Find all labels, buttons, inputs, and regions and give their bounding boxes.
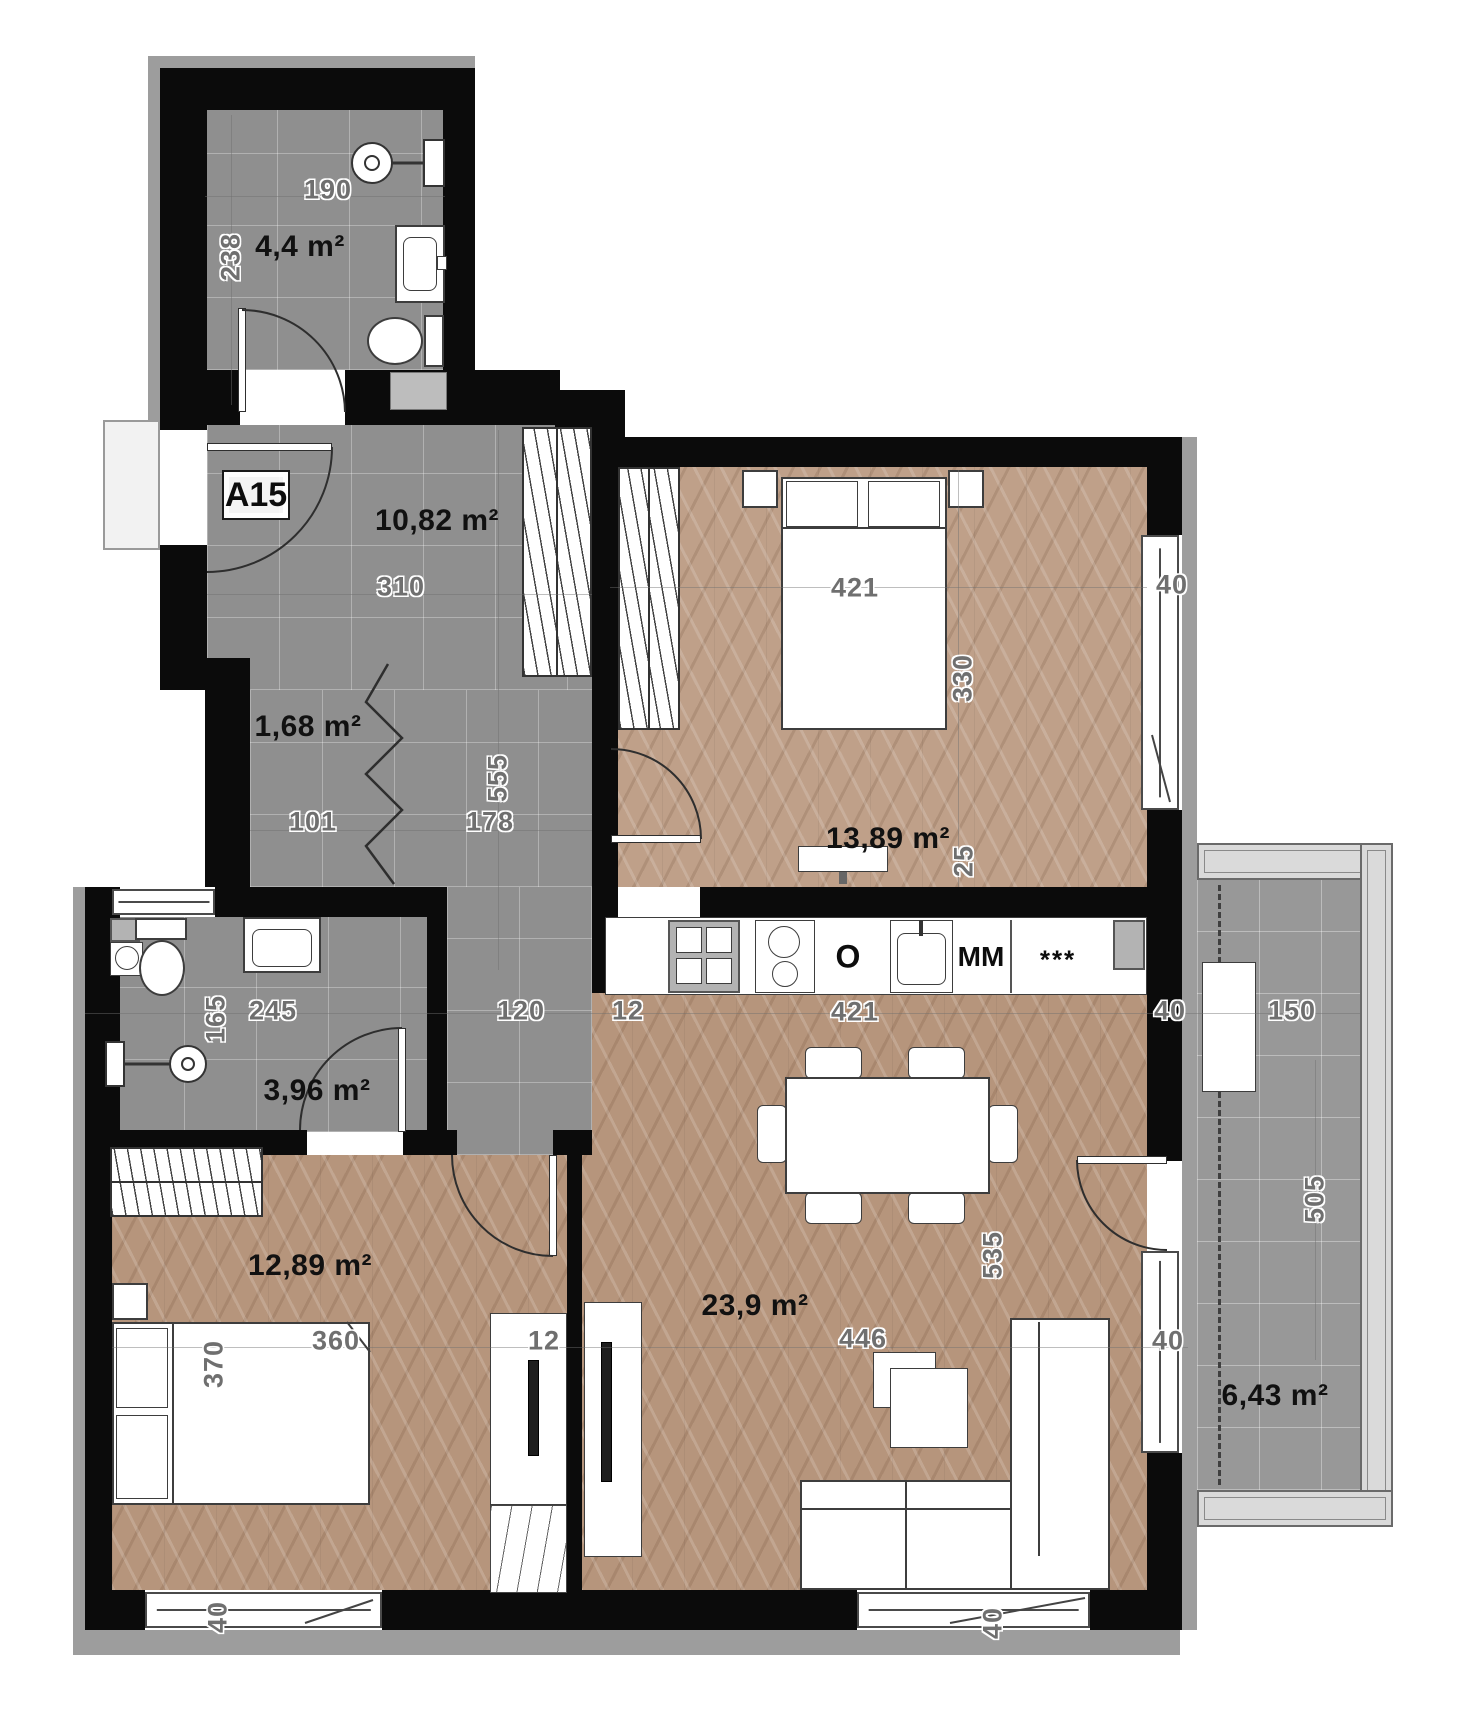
wall xyxy=(85,1155,112,1630)
toilet-tank xyxy=(135,918,187,940)
cabinet-pane xyxy=(706,927,732,953)
sofa-cushion-line xyxy=(905,1482,907,1588)
bedroom-top-wardrobe-divider xyxy=(648,467,650,730)
wall xyxy=(205,658,250,887)
area-label-bathroom-top: 4,4 m² xyxy=(255,230,345,264)
bed-blanket-line xyxy=(172,1322,174,1505)
kitchen-stars-label: *** xyxy=(1040,945,1076,976)
kitchen-corner-unit xyxy=(1113,920,1145,970)
wall xyxy=(610,437,1182,467)
washing-machine-drum-icon xyxy=(115,946,139,970)
dim-330: 330 xyxy=(948,654,979,702)
wall xyxy=(160,370,240,425)
toilet-bowl xyxy=(367,317,423,365)
dim-421-kitchen: 421 xyxy=(831,997,879,1028)
dresser xyxy=(490,1505,567,1593)
hall-wardrobe-divider xyxy=(556,427,558,677)
wall xyxy=(1147,810,1182,1161)
sofa-chaise xyxy=(1010,1318,1110,1590)
kitchen-mm-label: MM xyxy=(958,941,1005,973)
dim-360: 360 xyxy=(312,1326,360,1357)
area-label-bathroom-lower: 3,96 m² xyxy=(264,1074,371,1108)
entry-door-leaf xyxy=(207,443,332,451)
tv-screen xyxy=(528,1360,539,1456)
wall xyxy=(427,917,447,1132)
dim-40-bottom-center: 40 xyxy=(978,1607,1009,1639)
floor-plan: A15 O MM *** xyxy=(0,0,1470,1732)
wall xyxy=(215,887,447,917)
toilet-bowl xyxy=(139,940,185,996)
dim-421-bed: 421 xyxy=(831,573,879,604)
dining-chair xyxy=(908,1047,965,1079)
dim-40-bottom-left: 40 xyxy=(203,1601,234,1633)
nightstand xyxy=(742,470,778,508)
wall xyxy=(160,545,207,690)
area-label-bedroom-left: 12,89 m² xyxy=(248,1249,372,1283)
pillow xyxy=(116,1328,168,1408)
bed-blanket-line xyxy=(781,527,947,529)
dim-245: 245 xyxy=(249,996,297,1027)
cabinet-pane xyxy=(676,927,702,953)
nightstand xyxy=(112,1283,148,1320)
window-bathroom-lower xyxy=(112,889,215,915)
dim-12-partition: 12 xyxy=(528,1326,560,1357)
dining-chair xyxy=(908,1192,965,1224)
dim-40-right: 40 xyxy=(1152,1326,1184,1357)
dim-178: 178 xyxy=(466,807,514,838)
area-label-hallway: 10,82 m² xyxy=(375,504,499,538)
wall xyxy=(403,1130,457,1155)
dim-238: 238 xyxy=(216,233,247,281)
exterior-band-bottom xyxy=(73,1630,1180,1655)
area-label-bedroom-top: 13,89 m² xyxy=(826,822,950,856)
dim-505: 505 xyxy=(1300,1175,1331,1223)
dim-535: 535 xyxy=(978,1231,1009,1279)
wall xyxy=(443,110,475,390)
balcony-railing-bottom xyxy=(1197,1490,1393,1527)
faucet-icon xyxy=(437,256,447,270)
dining-table xyxy=(785,1077,990,1194)
dimension-line xyxy=(112,1347,1188,1348)
bedroom-top-console-leg xyxy=(839,872,847,884)
pillow xyxy=(116,1415,168,1499)
dim-165: 165 xyxy=(201,995,232,1043)
wall xyxy=(345,370,560,425)
bathroom-top-door-leaf xyxy=(238,308,246,412)
burner-icon xyxy=(772,961,798,987)
kitchen-sink-basin xyxy=(897,933,946,985)
area-label-closet: 1,68 m² xyxy=(255,710,362,744)
exterior-band-left-upper xyxy=(148,56,160,430)
dim-310: 310 xyxy=(377,572,425,603)
tv-screen xyxy=(601,1342,612,1482)
wall xyxy=(700,887,1147,917)
wall xyxy=(382,1590,857,1630)
kitchen-oven-label: O xyxy=(836,939,861,976)
sink-basin xyxy=(403,237,437,291)
balcony-railing-right xyxy=(1360,843,1393,1527)
dim-120: 120 xyxy=(497,996,545,1027)
toilet-tank xyxy=(424,315,444,367)
wall xyxy=(85,887,112,917)
wall xyxy=(592,887,611,917)
exterior-band-top xyxy=(148,56,475,68)
wall xyxy=(592,467,618,917)
dining-chair xyxy=(805,1047,862,1079)
exterior-band-left-lower xyxy=(73,887,85,1630)
dim-40-kitchen: 40 xyxy=(1154,996,1186,1027)
window-bedroom-left xyxy=(145,1592,382,1628)
dining-chair xyxy=(988,1105,1018,1163)
balcony-door-leaf xyxy=(1077,1156,1167,1164)
wall xyxy=(1090,1590,1180,1630)
bedroom-left-wardrobe-divider xyxy=(110,1181,263,1183)
exterior-band-right xyxy=(1182,437,1197,1630)
unit-id-box: A15 xyxy=(222,470,290,520)
dim-555: 555 xyxy=(483,754,514,802)
dim-101: 101 xyxy=(289,807,337,838)
dim-25: 25 xyxy=(949,845,980,877)
tv-unit-living xyxy=(584,1302,642,1557)
dim-150: 150 xyxy=(1268,996,1316,1027)
burner-icon xyxy=(768,926,800,958)
area-label-balcony: 6,43 m² xyxy=(1222,1379,1329,1413)
shower-mat xyxy=(390,372,447,410)
cabinet-pane xyxy=(706,958,732,984)
coffee-table xyxy=(890,1368,968,1448)
bedroom-top-door-leaf xyxy=(611,835,701,843)
wall xyxy=(1147,437,1182,535)
unit-id-label: A15 xyxy=(225,476,287,515)
nightstand xyxy=(948,470,984,508)
dim-40-top-right: 40 xyxy=(1156,570,1188,601)
kitchen-faucet-icon xyxy=(919,920,923,936)
wall xyxy=(160,68,475,110)
dining-chair xyxy=(757,1105,787,1163)
area-label-living-room: 23,9 m² xyxy=(702,1289,809,1323)
dining-chair xyxy=(805,1192,862,1224)
partition-wall xyxy=(567,1150,582,1590)
dim-370: 370 xyxy=(199,1340,230,1388)
dim-446: 446 xyxy=(839,1324,887,1355)
pillow xyxy=(868,481,940,527)
dim-190: 190 xyxy=(304,175,352,206)
window-living-bottom xyxy=(857,1592,1090,1628)
wall xyxy=(592,917,606,993)
bathroom-lower-door-leaf xyxy=(398,1028,406,1132)
pillow xyxy=(786,481,858,527)
balcony-table xyxy=(1202,962,1256,1092)
sofa-chaise-line xyxy=(1038,1322,1040,1556)
dim-12-kitchen: 12 xyxy=(612,996,644,1027)
entry-landing xyxy=(103,420,160,550)
sink-basin xyxy=(252,929,312,967)
bedroom-left-door-leaf xyxy=(549,1155,557,1256)
appliance-divider xyxy=(1010,920,1012,993)
cabinet-pane xyxy=(676,958,702,984)
